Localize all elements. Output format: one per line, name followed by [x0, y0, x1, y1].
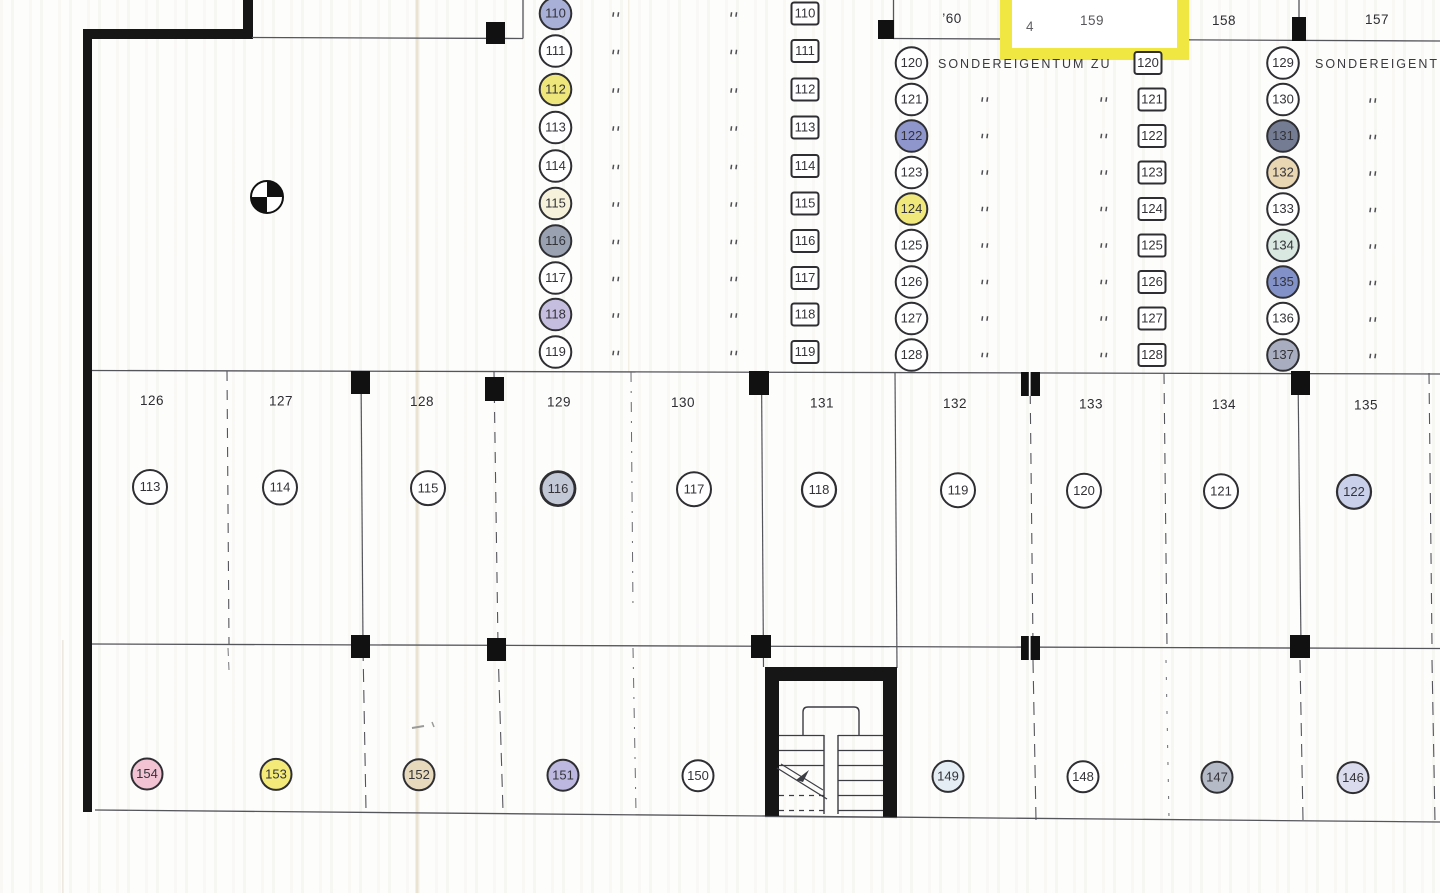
- svg-text:157: 157: [1365, 12, 1389, 27]
- svg-text:135: 135: [1272, 274, 1294, 289]
- svg-text:115: 115: [545, 196, 566, 211]
- svg-text:131: 131: [810, 395, 834, 410]
- svg-text:114: 114: [795, 158, 816, 173]
- svg-text:112: 112: [795, 82, 816, 97]
- svg-text:126: 126: [140, 393, 164, 408]
- svg-text:151: 151: [552, 767, 574, 782]
- svg-text:116: 116: [795, 233, 816, 248]
- svg-text:129: 129: [1272, 55, 1294, 70]
- svg-text:133: 133: [1079, 396, 1103, 411]
- svg-text:120: 120: [1137, 55, 1159, 70]
- svg-text:125: 125: [901, 238, 923, 253]
- svg-text:122: 122: [901, 128, 923, 143]
- svg-text:116: 116: [548, 481, 569, 496]
- svg-text:135: 135: [1354, 397, 1378, 412]
- svg-text:SONDEREIGENTUM ZU: SONDEREIGENTUM ZU: [938, 57, 1112, 71]
- svg-text:’60: ’60: [942, 11, 962, 26]
- svg-text:150: 150: [687, 768, 709, 783]
- svg-text:130: 130: [671, 395, 695, 410]
- svg-text:111: 111: [795, 43, 815, 58]
- svg-text:121: 121: [901, 92, 923, 107]
- svg-text:119: 119: [795, 344, 816, 359]
- svg-text:154: 154: [136, 766, 158, 781]
- svg-text:117: 117: [545, 270, 566, 285]
- svg-text:149: 149: [937, 769, 959, 784]
- svg-text:127: 127: [901, 311, 923, 326]
- svg-text:122: 122: [1343, 484, 1365, 499]
- svg-text:118: 118: [809, 482, 830, 497]
- svg-text:134: 134: [1212, 397, 1236, 412]
- svg-text:120: 120: [901, 55, 923, 70]
- svg-text:SONDEREIGENT: SONDEREIGENT: [1315, 57, 1439, 71]
- svg-text:131: 131: [1272, 128, 1294, 143]
- svg-text:118: 118: [545, 307, 566, 322]
- svg-text:114: 114: [545, 158, 566, 173]
- svg-text:128: 128: [901, 347, 923, 362]
- svg-text:118: 118: [795, 307, 816, 322]
- svg-text:4: 4: [1026, 19, 1034, 34]
- svg-text:113: 113: [140, 479, 161, 494]
- svg-text:115: 115: [418, 480, 439, 495]
- svg-text:132: 132: [1272, 165, 1294, 180]
- svg-text:121: 121: [1141, 92, 1163, 107]
- svg-text:116: 116: [545, 233, 566, 248]
- svg-text:125: 125: [1141, 238, 1163, 253]
- svg-text:127: 127: [1141, 311, 1163, 326]
- svg-text:117: 117: [684, 481, 705, 496]
- svg-text:136: 136: [1272, 311, 1294, 326]
- svg-text:152: 152: [408, 767, 430, 782]
- svg-text:159: 159: [1080, 13, 1104, 28]
- svg-text:126: 126: [1141, 274, 1163, 289]
- svg-text:129: 129: [547, 394, 571, 409]
- svg-text:114: 114: [270, 480, 291, 495]
- svg-text:122: 122: [1141, 128, 1163, 143]
- svg-text:126: 126: [901, 274, 923, 289]
- svg-text:113: 113: [795, 120, 816, 135]
- svg-text:128: 128: [1141, 347, 1163, 362]
- svg-text:115: 115: [795, 196, 816, 211]
- svg-text:113: 113: [545, 120, 566, 135]
- svg-text:120: 120: [1073, 483, 1095, 498]
- svg-text:133: 133: [1272, 201, 1294, 216]
- svg-text:110: 110: [545, 6, 566, 21]
- svg-text:128: 128: [410, 394, 434, 409]
- svg-text:124: 124: [1141, 201, 1163, 216]
- svg-text:117: 117: [795, 270, 816, 285]
- svg-text:123: 123: [901, 165, 923, 180]
- svg-text:147: 147: [1206, 769, 1228, 784]
- svg-text:110: 110: [795, 6, 816, 21]
- svg-text:130: 130: [1272, 92, 1294, 107]
- svg-text:127: 127: [269, 394, 293, 409]
- svg-text:134: 134: [1272, 238, 1294, 253]
- svg-text:112: 112: [545, 82, 566, 97]
- svg-text:121: 121: [1210, 484, 1232, 499]
- svg-text:158: 158: [1212, 13, 1236, 28]
- svg-text:146: 146: [1342, 770, 1364, 785]
- svg-text:153: 153: [265, 767, 287, 782]
- svg-text:132: 132: [943, 396, 967, 411]
- svg-text:148: 148: [1072, 769, 1094, 784]
- svg-text:137: 137: [1272, 347, 1294, 362]
- svg-text:119: 119: [948, 482, 969, 497]
- svg-text:119: 119: [545, 344, 566, 359]
- svg-text:123: 123: [1141, 165, 1163, 180]
- svg-text:111: 111: [546, 43, 566, 58]
- svg-text:124: 124: [901, 201, 923, 216]
